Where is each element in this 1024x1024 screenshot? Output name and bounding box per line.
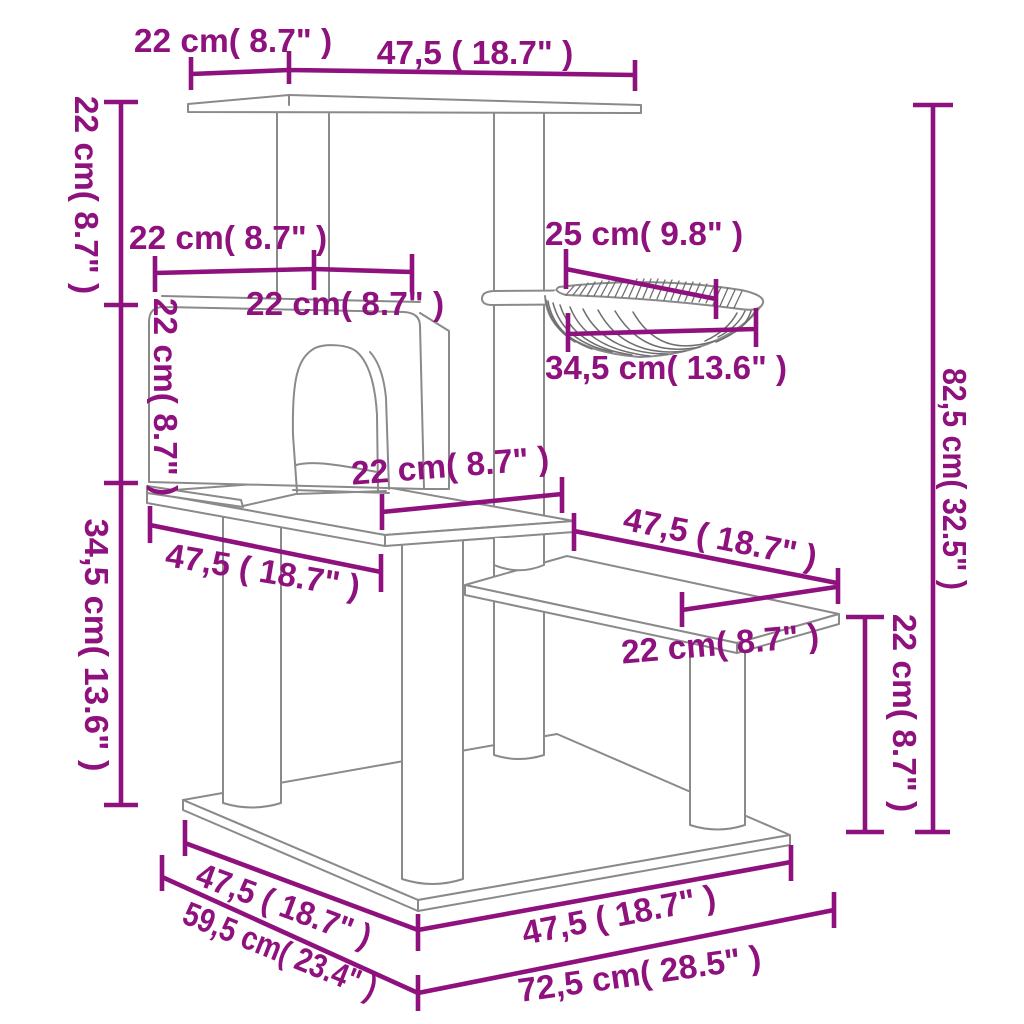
svg-text:22 cm( 8.7" ): 22 cm( 8.7" ) bbox=[134, 23, 332, 60]
svg-text:25 cm( 9.8" ): 25 cm( 9.8" ) bbox=[545, 216, 743, 253]
svg-text:34,5 cm( 13.6" ): 34,5 cm( 13.6" ) bbox=[77, 519, 114, 772]
svg-text:34,5 cm( 13.6" ): 34,5 cm( 13.6" ) bbox=[545, 350, 787, 387]
svg-text:22 cm( 8.7" ): 22 cm( 8.7" ) bbox=[246, 286, 444, 323]
svg-text:47,5 ( 18.7" ): 47,5 ( 18.7" ) bbox=[377, 35, 574, 72]
svg-text:82,5 cm( 32.5" ): 82,5 cm( 32.5" ) bbox=[935, 368, 972, 590]
svg-text:22 cm( 8.7" ): 22 cm( 8.7" ) bbox=[67, 96, 104, 294]
svg-text:22 cm( 8.7" ): 22 cm( 8.7" ) bbox=[146, 298, 183, 496]
svg-text:22 cm( 8.7" ): 22 cm( 8.7" ) bbox=[129, 220, 327, 257]
svg-text:22 cm( 8.7" ): 22 cm( 8.7" ) bbox=[885, 614, 922, 812]
